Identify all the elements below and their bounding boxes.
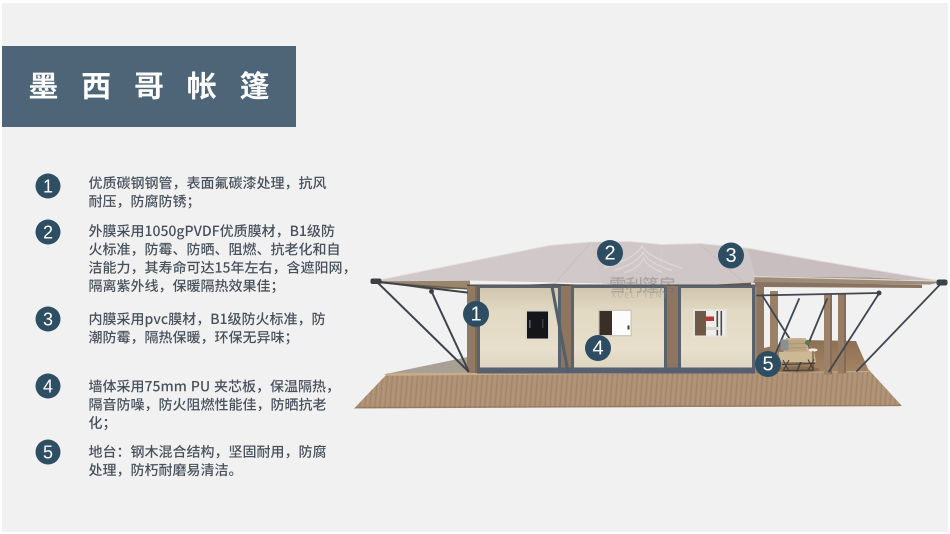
svg-text:5: 5 [43,443,53,463]
svg-text:2: 2 [43,223,53,243]
svg-text:1: 1 [43,177,53,197]
svg-text:3: 3 [43,310,53,330]
svg-text:3: 3 [725,245,736,267]
svg-text:1: 1 [470,304,481,326]
svg-text:4: 4 [43,377,53,397]
svg-text:5: 5 [762,354,773,376]
svg-text:2: 2 [604,243,615,265]
svg-text:4: 4 [592,338,603,360]
